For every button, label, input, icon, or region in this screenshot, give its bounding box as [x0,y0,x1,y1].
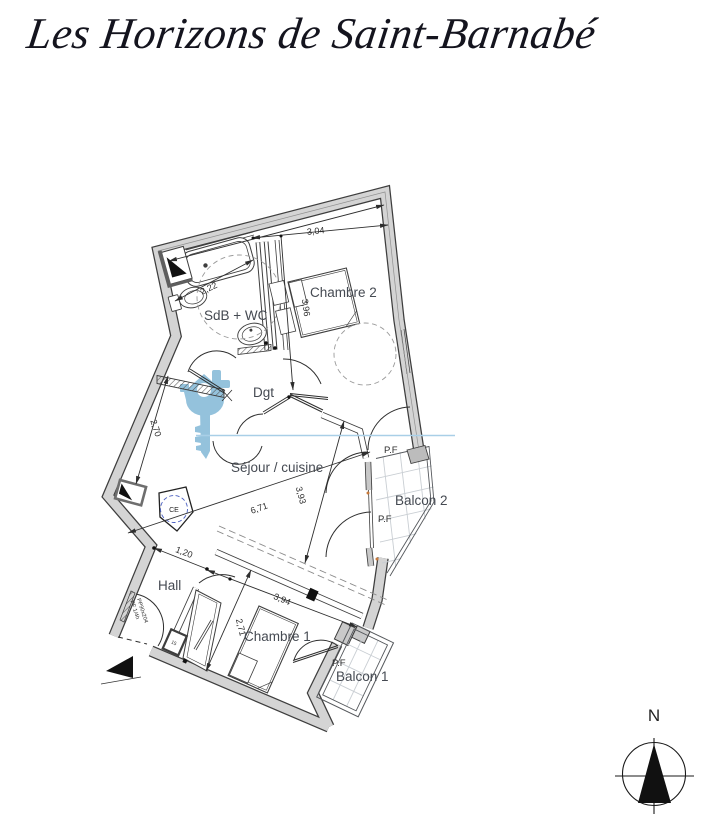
svg-text:3,04: 3,04 [306,225,324,237]
svg-text:P.F: P.F [332,658,346,669]
svg-text:3,93: 3,93 [294,485,308,505]
svg-text:Balcon 1: Balcon 1 [336,669,389,684]
svg-text:3,94: 3,94 [272,591,292,607]
svg-text:P.F: P.F [378,514,392,525]
svg-text:1,20: 1,20 [174,544,194,560]
svg-text:SdB + WC: SdB + WC [204,308,268,323]
svg-text:CE: CE [169,507,179,514]
svg-text:6,71: 6,71 [249,501,269,516]
svg-text:N: N [648,706,660,725]
svg-text:Balcon 2: Balcon 2 [395,493,448,508]
svg-text:Dgt: Dgt [253,385,274,400]
svg-text:Chambre 1: Chambre 1 [244,629,311,644]
svg-text:P.F: P.F [384,445,398,456]
svg-text:Hall: Hall [158,578,181,593]
svg-text:Chambre 2: Chambre 2 [310,285,377,300]
svg-text:Séjour / cuisine: Séjour / cuisine [231,460,323,475]
